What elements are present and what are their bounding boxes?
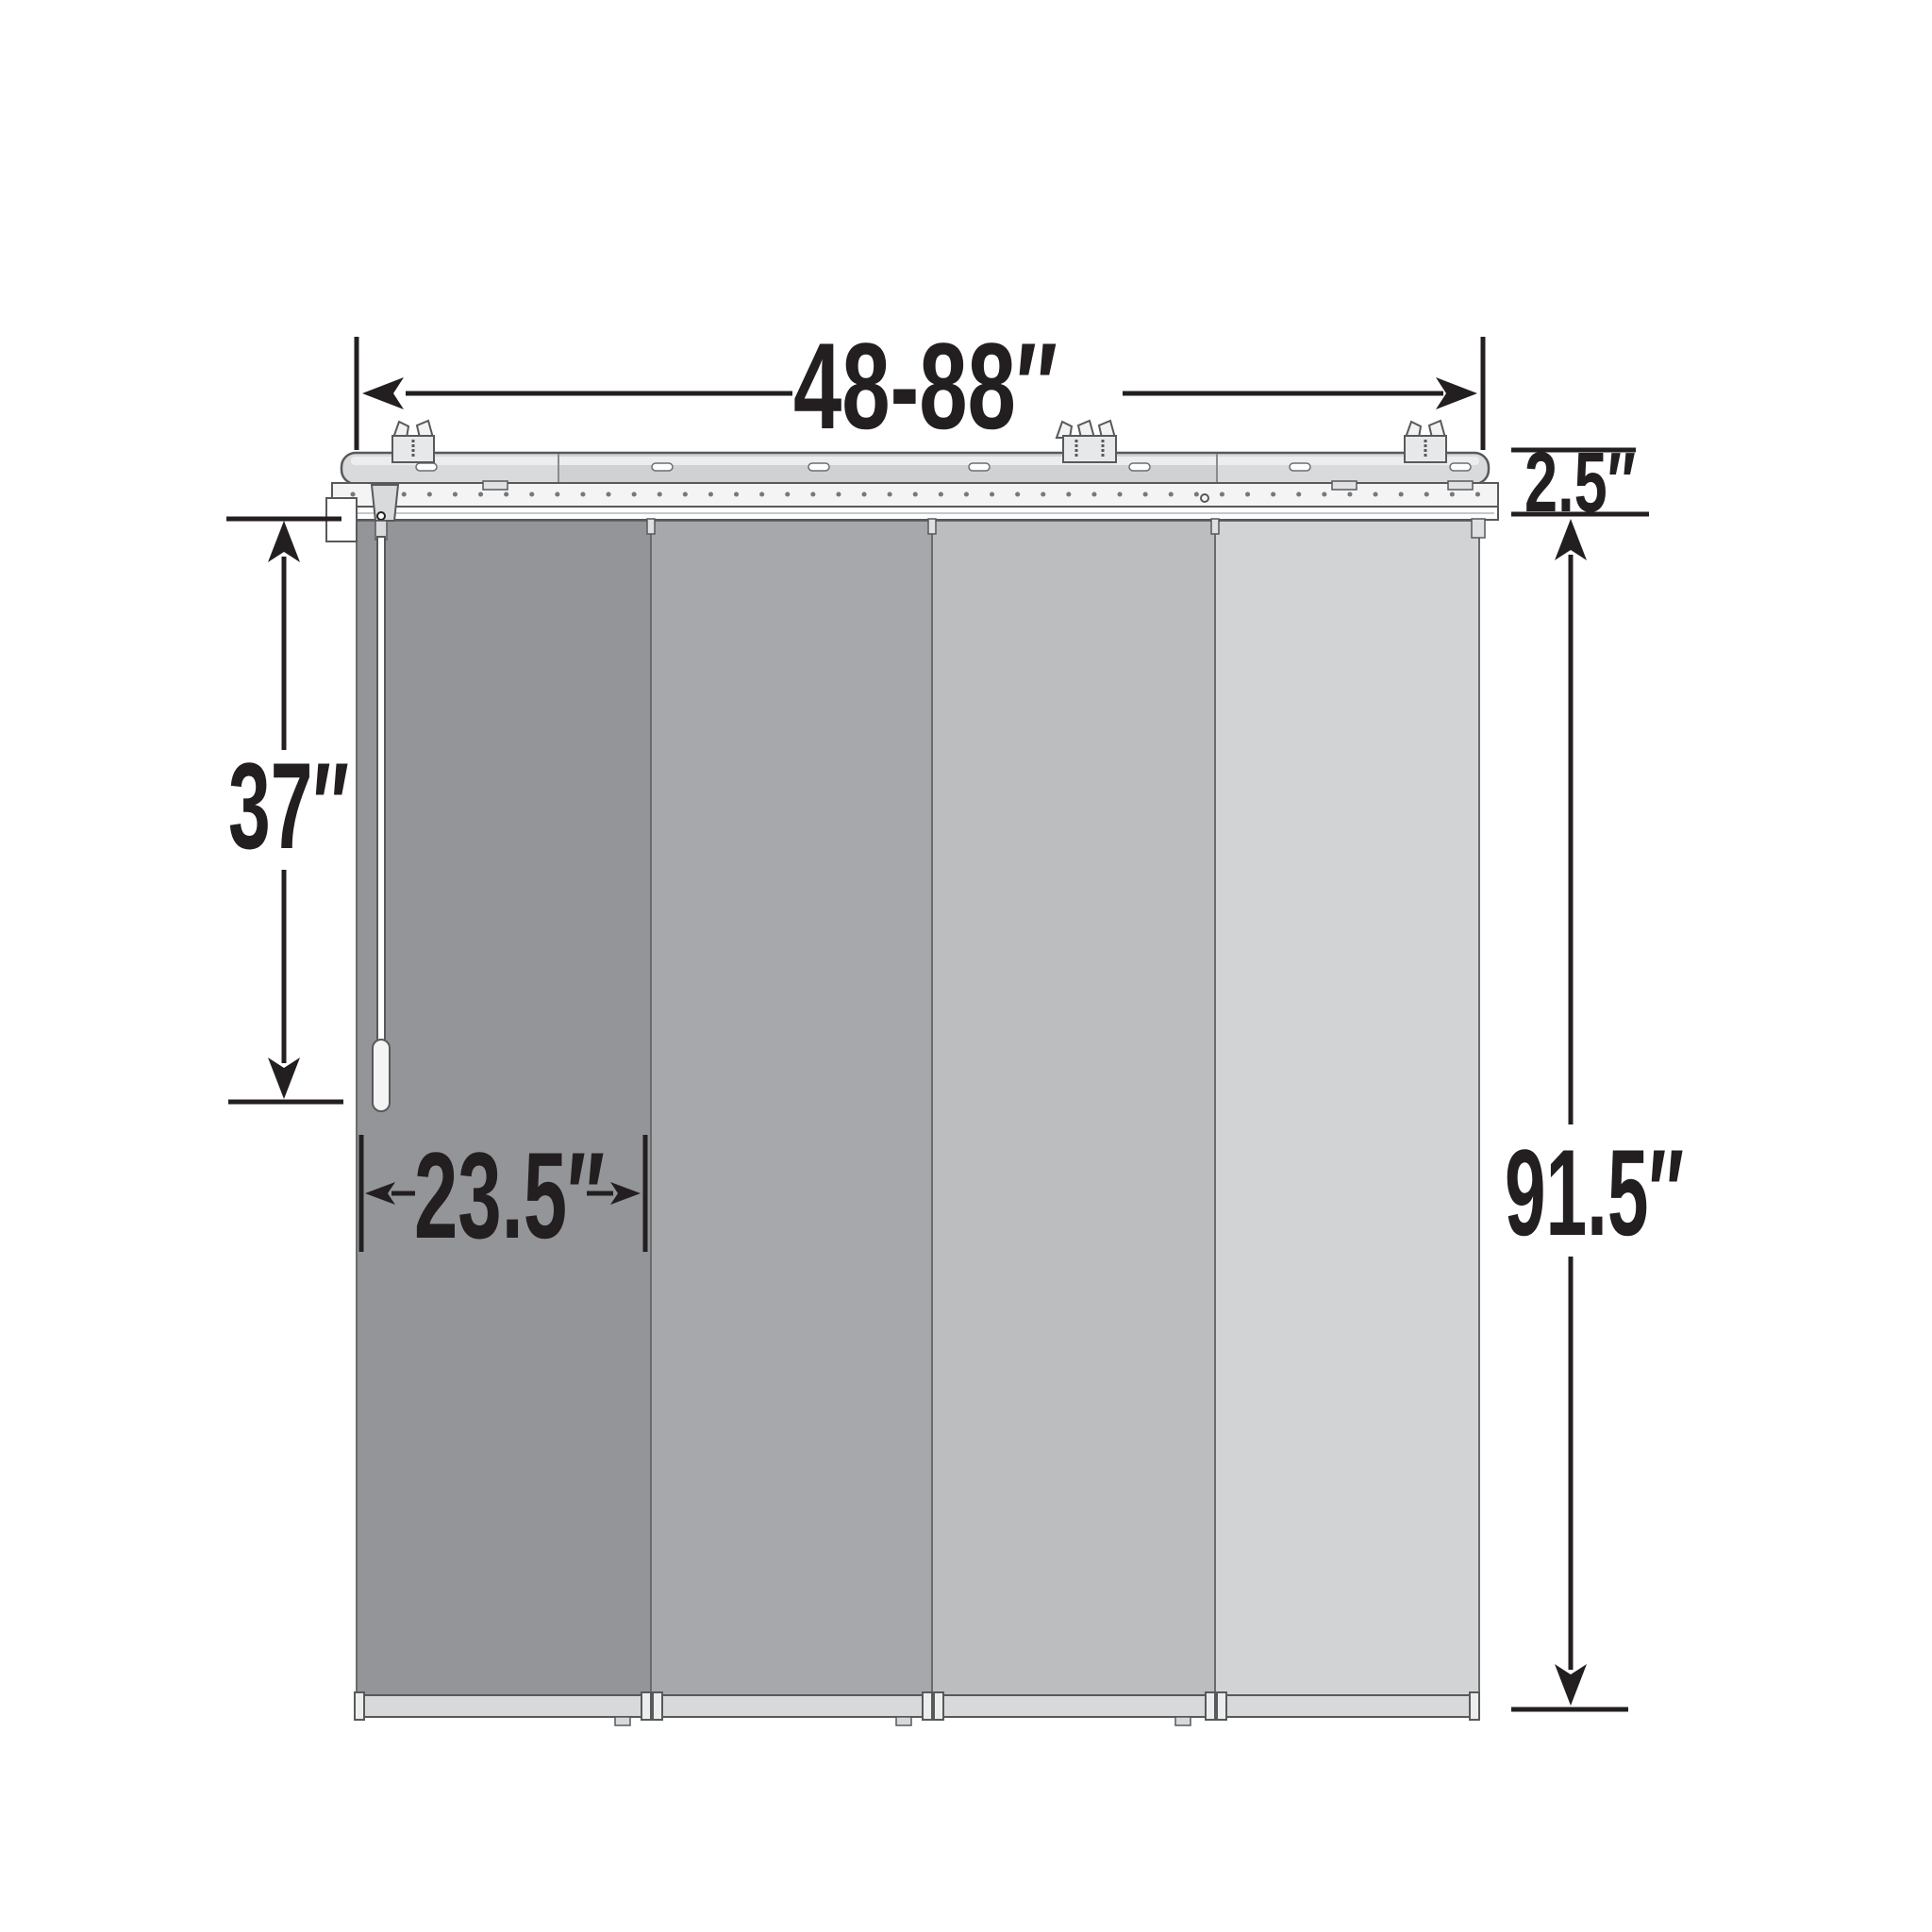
mounting-bracket-right <box>1405 421 1446 462</box>
bracket-body <box>1063 436 1116 462</box>
arrowhead-left <box>362 377 404 409</box>
bottom-rail-2-left-cap <box>653 1692 662 1720</box>
product-height-label: 91.5″ <box>1505 1124 1684 1261</box>
arrowhead-down <box>1555 1664 1587 1706</box>
strip-clip <box>483 481 508 490</box>
diagram-canvas: 48-88″ 2.5″ 37″ 23.5″ 91.5″ <box>0 0 1932 1932</box>
mounting-bracket-middle <box>1057 421 1116 462</box>
rail-slot <box>1129 463 1150 471</box>
bottom-rail-1-left-cap <box>355 1692 364 1720</box>
wand-handle <box>373 1040 390 1111</box>
bottom-rail-1-tab <box>615 1717 630 1725</box>
rail-slot <box>1290 463 1310 471</box>
panel-4 <box>1215 521 1479 1695</box>
bottom-rail-1-right-cap <box>641 1692 651 1720</box>
dimension-product-height <box>1511 519 1628 1709</box>
rail-slot <box>969 463 990 471</box>
rail-slot <box>652 463 673 471</box>
mounting-bracket-left <box>392 421 434 462</box>
arrowhead-up <box>268 521 300 562</box>
panel-hanger <box>647 519 655 534</box>
bottom-rail-2-right-cap <box>923 1692 932 1720</box>
rail-slot <box>808 463 829 471</box>
right-edge-clip <box>1472 519 1485 538</box>
headrail-tube-highlight <box>351 457 1479 465</box>
bottom-rail-4 <box>1221 1695 1474 1717</box>
bottom-rail-2 <box>657 1695 926 1717</box>
panel-hanger <box>928 519 936 534</box>
bottom-rail-1 <box>362 1695 645 1717</box>
panel-width-label: 23.5″ <box>414 1126 605 1264</box>
wand-length-label: 37″ <box>228 737 349 874</box>
strip-clip <box>1448 481 1473 490</box>
arrowhead-down <box>268 1058 300 1099</box>
strip-clip <box>1332 481 1357 490</box>
bottom-rail-3-right-cap <box>1206 1692 1215 1720</box>
bottom-rail-3 <box>938 1695 1209 1717</box>
bottom-rail-3-tab <box>1175 1717 1191 1725</box>
bottom-rails-group <box>355 1692 1479 1725</box>
panel-hanger <box>1211 519 1219 534</box>
rail-slot <box>416 463 437 471</box>
bottom-rail-4-left-cap <box>1217 1692 1226 1720</box>
bottom-rail-4-right-cap <box>1470 1692 1479 1720</box>
rail-height-label: 2.5″ <box>1524 436 1636 530</box>
width-range-label: 48-88″ <box>793 317 1058 455</box>
panel-1 <box>357 521 651 1695</box>
bottom-rail-3-left-cap <box>934 1692 943 1720</box>
panel-blind-dimension-diagram: 48-88″ 2.5″ 37″ 23.5″ 91.5″ <box>0 0 1932 1932</box>
panel-3 <box>932 521 1215 1695</box>
panel-2 <box>651 521 932 1695</box>
panel-group <box>357 521 1479 1695</box>
wand-hook <box>377 512 385 520</box>
bottom-rail-2-tab <box>896 1717 911 1725</box>
rail-slot <box>1450 463 1471 471</box>
wand-stem <box>377 537 385 1044</box>
